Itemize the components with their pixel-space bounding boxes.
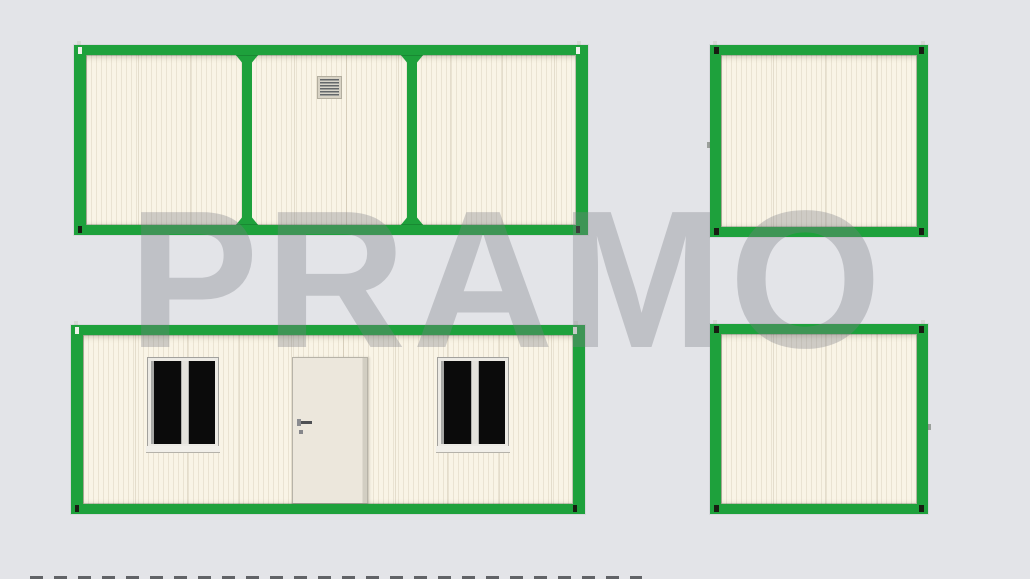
lifting-lug: [921, 41, 925, 46]
render-canvas: PRAMO: [0, 0, 1030, 579]
corner-fitting: [714, 228, 719, 235]
wall-panel: [721, 55, 917, 227]
door: [292, 357, 368, 504]
corner-fitting: [919, 47, 924, 54]
corner-fitting: [576, 226, 580, 233]
lifting-lug: [713, 41, 717, 46]
corner-fitting: [919, 228, 924, 235]
window-mullion: [471, 361, 479, 444]
window-left: [148, 358, 218, 447]
corner-fitting: [919, 326, 924, 333]
window-pane: [444, 361, 471, 444]
corner-fitting: [75, 327, 79, 334]
corner-fitting: [714, 505, 719, 512]
panel-divider: [242, 54, 252, 226]
lifting-lug: [74, 321, 78, 326]
corner-fitting: [78, 226, 82, 233]
corner-fitting: [714, 47, 719, 54]
corner-fitting: [576, 47, 580, 54]
container-rear-elevation: [74, 45, 588, 235]
corner-fitting: [714, 326, 719, 333]
lifting-lug: [921, 320, 925, 325]
vent-grille: [318, 77, 341, 98]
container-end-elevation-bottom: [710, 324, 928, 514]
corner-fitting: [75, 505, 79, 512]
edge-tab: [707, 142, 710, 148]
corner-fitting: [573, 327, 577, 334]
edge-tab: [928, 424, 931, 430]
lifting-lug: [577, 41, 581, 46]
wall-panel: [721, 334, 917, 504]
door-lock-icon: [299, 430, 303, 434]
window-pane: [479, 361, 506, 444]
lifting-lug: [77, 41, 81, 46]
corner-fitting: [78, 47, 82, 54]
lifting-lug: [574, 321, 578, 326]
window-right: [438, 358, 508, 447]
corner-fitting: [919, 505, 924, 512]
window-mullion: [181, 361, 189, 444]
window-pane: [154, 361, 181, 444]
corner-fitting: [573, 505, 577, 512]
window-pane: [189, 361, 216, 444]
lifting-lug: [713, 320, 717, 325]
container-end-elevation-top: [710, 45, 928, 237]
door-handle-icon: [297, 421, 312, 424]
container-front-elevation: [71, 325, 585, 514]
panel-divider: [407, 54, 417, 226]
